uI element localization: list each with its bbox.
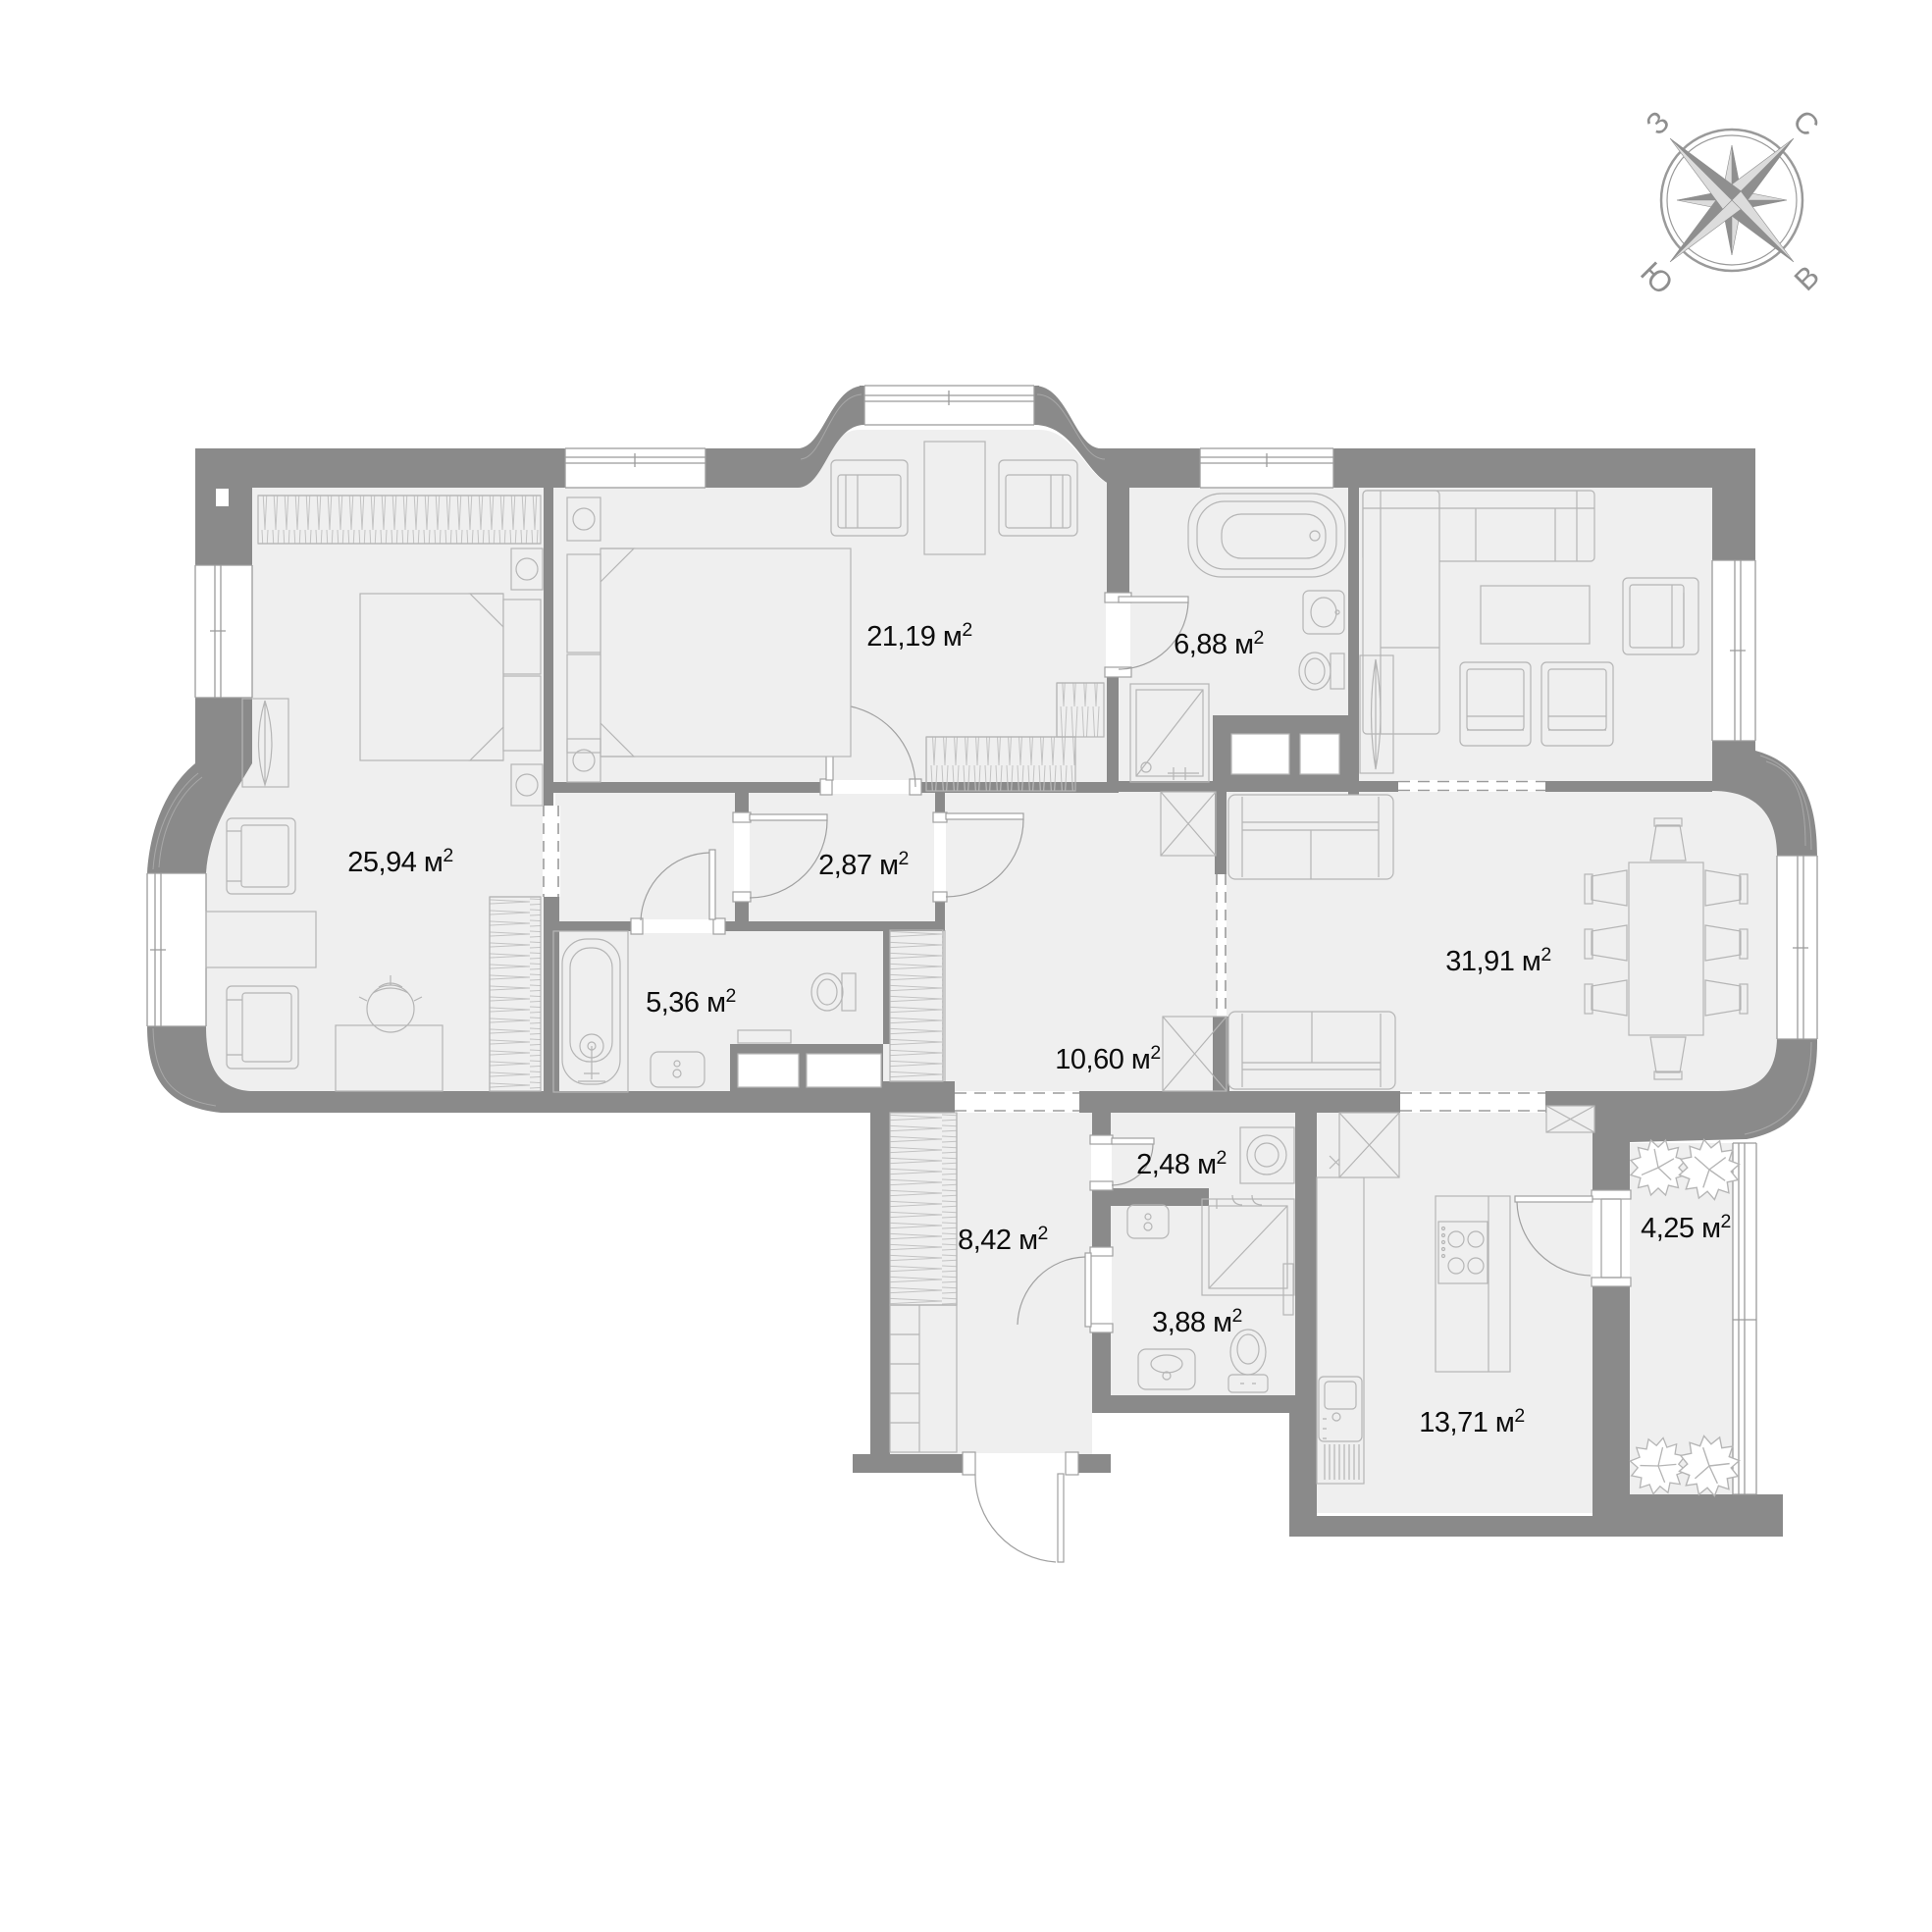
svg-text:10,60 м2: 10,60 м2: [1055, 1042, 1160, 1075]
svg-text:13,71 м2: 13,71 м2: [1419, 1405, 1524, 1438]
svg-text:4,25 м2: 4,25 м2: [1641, 1211, 1731, 1244]
svg-text:21,19 м2: 21,19 м2: [866, 619, 971, 653]
svg-text:2,87 м2: 2,87 м2: [818, 848, 909, 881]
svg-text:2,48 м2: 2,48 м2: [1136, 1147, 1227, 1180]
svg-text:31,91 м2: 31,91 м2: [1445, 944, 1550, 977]
svg-text:25,94 м2: 25,94 м2: [347, 845, 452, 878]
svg-text:6,88 м2: 6,88 м2: [1174, 627, 1264, 660]
svg-text:3,88 м2: 3,88 м2: [1152, 1305, 1242, 1338]
svg-text:5,36 м2: 5,36 м2: [646, 985, 736, 1018]
svg-text:8,42 м2: 8,42 м2: [958, 1223, 1048, 1256]
